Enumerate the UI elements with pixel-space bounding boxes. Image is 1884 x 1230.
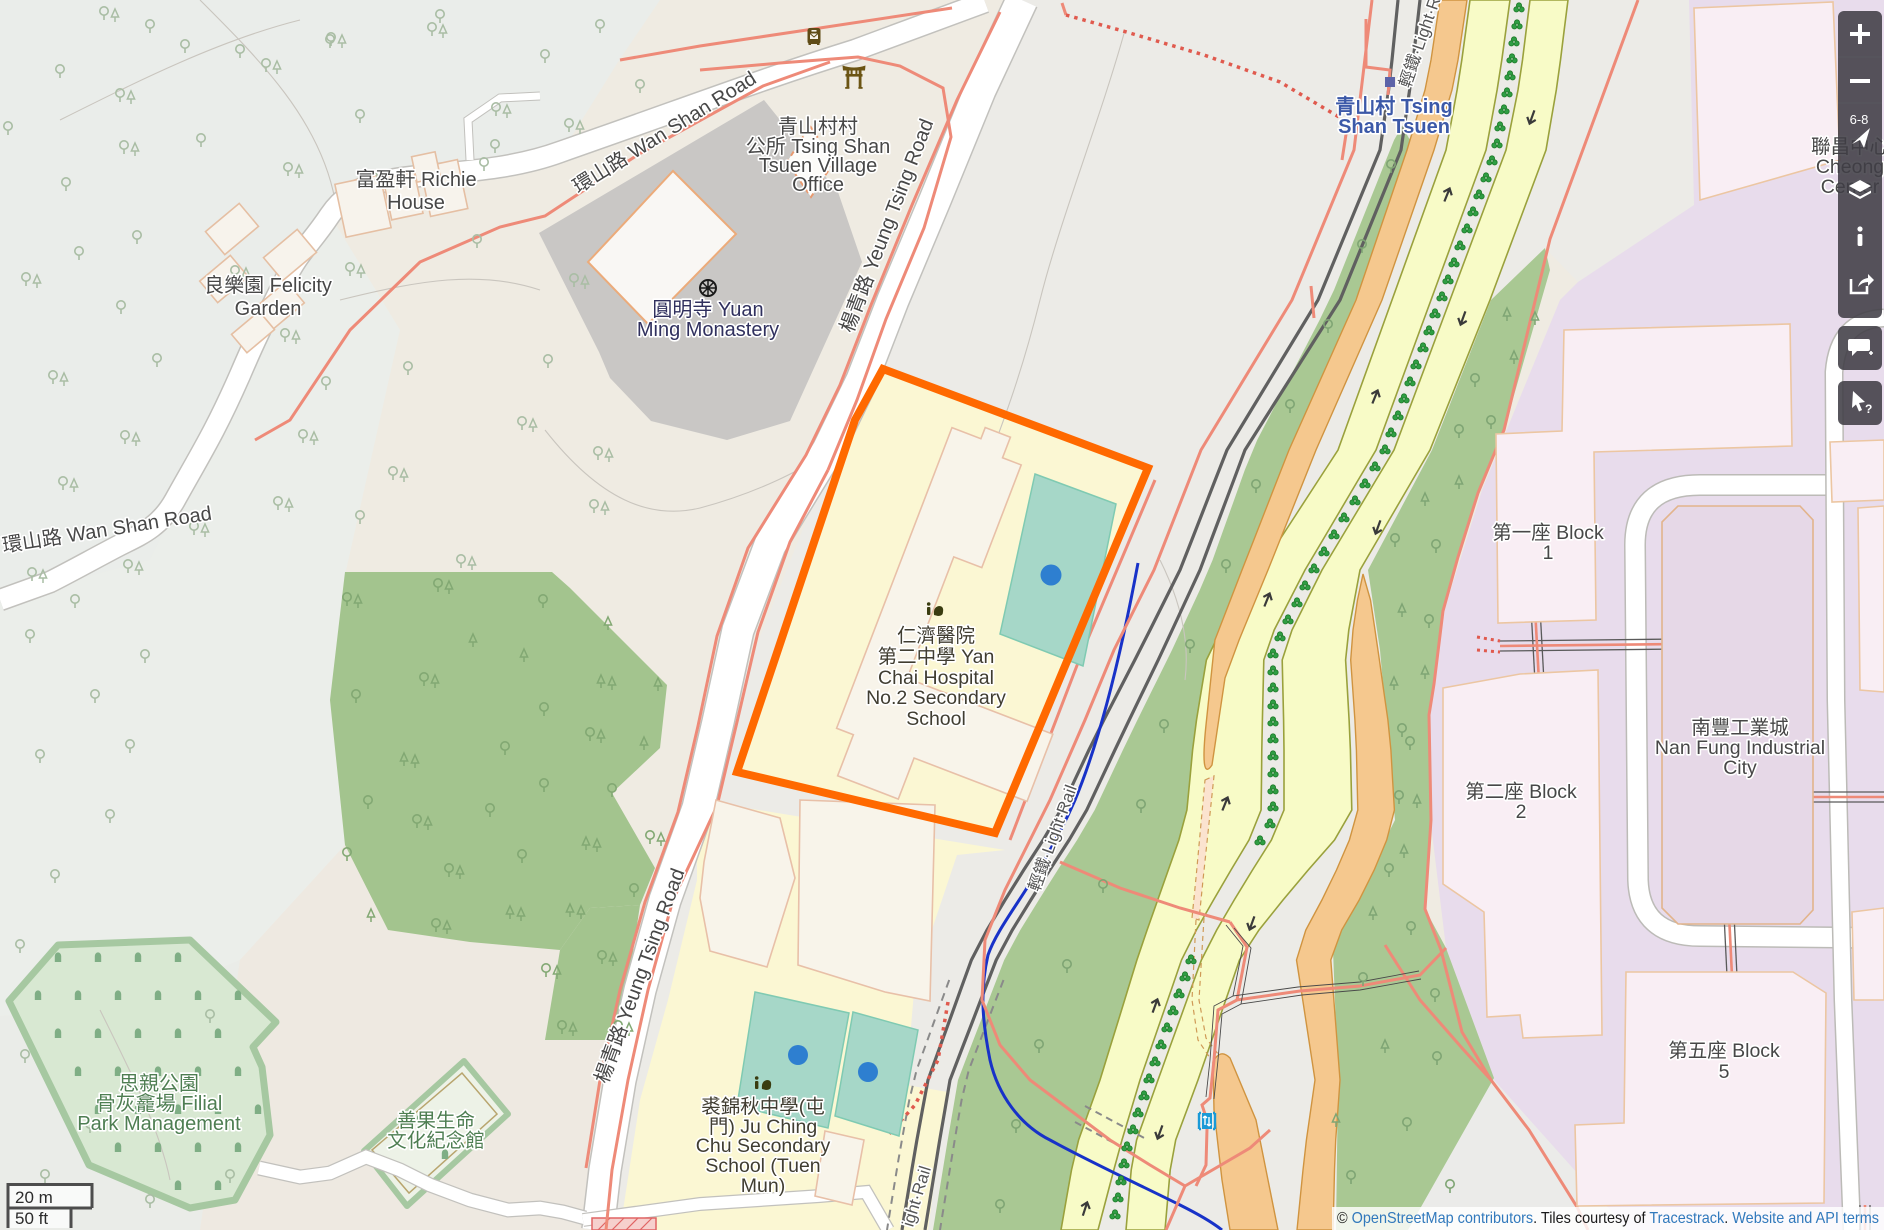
svg-text:© OpenStreetMap contributors.: © OpenStreetMap contributors. Tiles cour…	[1337, 1210, 1879, 1227]
svg-text:善果生命文化紀念館: 善果生命文化紀念館	[387, 1110, 485, 1152]
svg-text:圓明寺 YuanMing Monastery: 圓明寺 YuanMing Monastery	[637, 298, 779, 341]
svg-text:6-8: 6-8	[1850, 112, 1869, 127]
svg-text:20 m: 20 m	[15, 1188, 53, 1207]
svg-text:?: ?	[1865, 402, 1872, 416]
svg-text:青山村 TsingShan Tsuen: 青山村 TsingShan Tsuen	[1335, 95, 1452, 138]
svg-text:50 ft: 50 ft	[15, 1209, 48, 1228]
